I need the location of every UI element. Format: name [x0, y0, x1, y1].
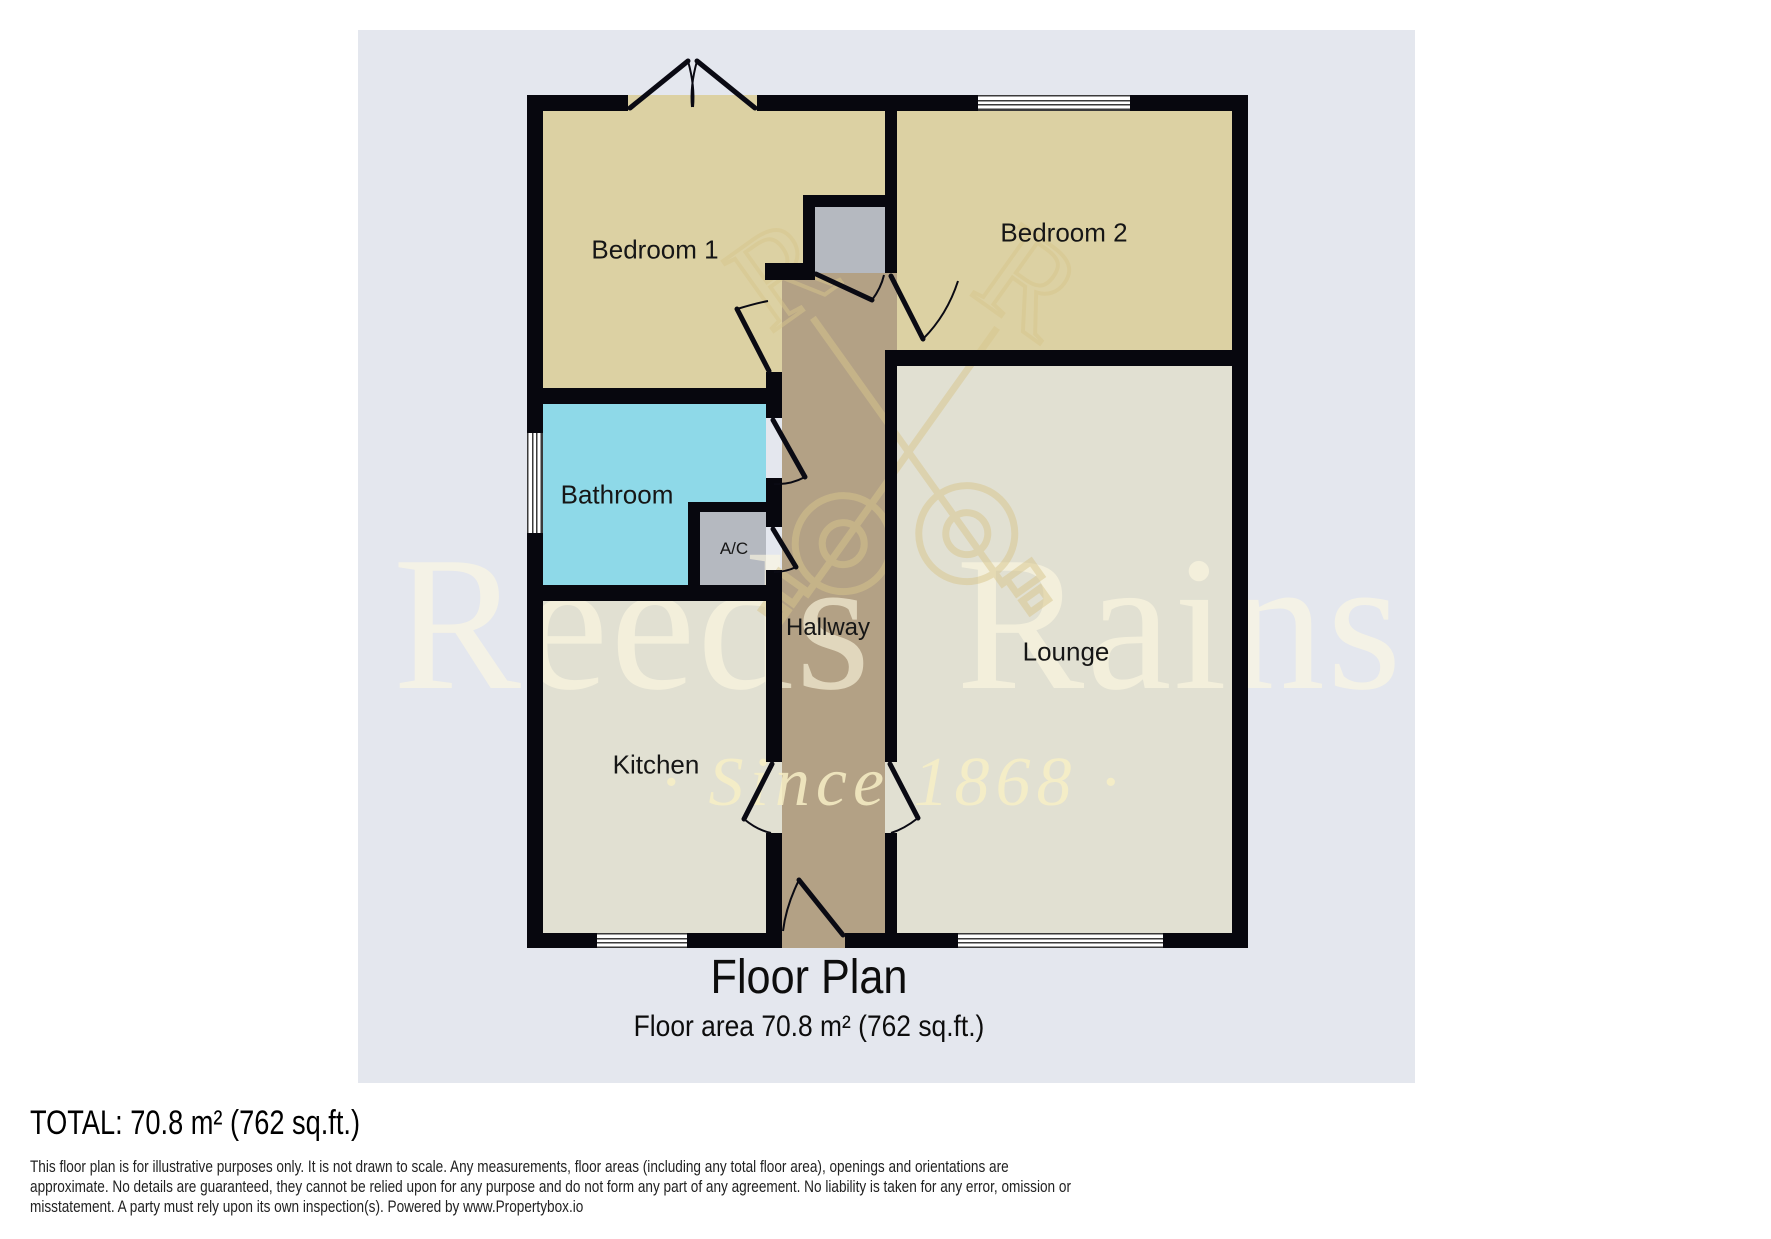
wall-segment [1130, 95, 1248, 111]
wall-segment [885, 366, 897, 762]
bedroom2-doorway [885, 273, 897, 350]
bedroom1-entry-opening [628, 95, 757, 111]
bathroom-window [527, 433, 543, 533]
disclaimer-text: This floor plan is for illustrative purp… [30, 1157, 1071, 1217]
wall-segment [527, 533, 543, 948]
kitchen-doorway [766, 762, 782, 833]
lounge-doorway [885, 762, 897, 833]
lounge-label: Lounge [1023, 637, 1110, 668]
total-area-text: TOTAL: 70.8 m² (762 sq.ft.) [30, 1104, 360, 1143]
wall-segment [766, 372, 782, 404]
lounge-window [958, 933, 1163, 948]
bedroom2-label: Bedroom 2 [1000, 218, 1127, 249]
wall-segment [885, 833, 897, 933]
disclaimer-line: approximate. No details are guaranteed, … [30, 1177, 1071, 1197]
wall-segment [527, 95, 543, 433]
bedroom1-floor-notch [766, 111, 885, 195]
wall-segment [766, 404, 782, 418]
wall-segment [688, 502, 700, 585]
disclaimer-line: This floor plan is for illustrative purp… [30, 1157, 1071, 1177]
hallway-floor [782, 273, 885, 933]
ac-label: A/C [720, 539, 748, 559]
wall-segment [845, 933, 958, 948]
hallway-label: Hallway [786, 614, 870, 642]
bedroom1-label: Bedroom 1 [591, 235, 718, 266]
wall-segment [885, 95, 897, 273]
disclaimer-line: misstatement. A party must rely upon its… [30, 1197, 1071, 1217]
floor-plan-title: Floor Plan [711, 950, 908, 1005]
wall-segment [766, 478, 782, 527]
bedroom1-doorway [766, 280, 782, 372]
kitchen-label: Kitchen [613, 750, 700, 781]
bedroom1-floor-notch [766, 195, 803, 263]
wall-segment [687, 933, 782, 948]
wall-segment [543, 585, 782, 601]
wall-segment [543, 388, 782, 404]
wall-segment [885, 350, 1232, 366]
wall-segment [766, 833, 782, 933]
storage-cupboard-floor [815, 207, 885, 273]
kitchen-window [597, 933, 687, 948]
wall-segment [688, 502, 766, 512]
bedroom2-window [978, 95, 1130, 111]
wall-segment [803, 195, 885, 207]
wall-segment [766, 601, 782, 762]
wall-segment [757, 95, 978, 111]
bathroom-label: Bathroom [561, 480, 674, 511]
entrance-doorway [782, 933, 845, 948]
floor-area-subtitle: Floor area 70.8 m² (762 sq.ft.) [634, 1010, 985, 1044]
wall-segment [1232, 95, 1248, 948]
